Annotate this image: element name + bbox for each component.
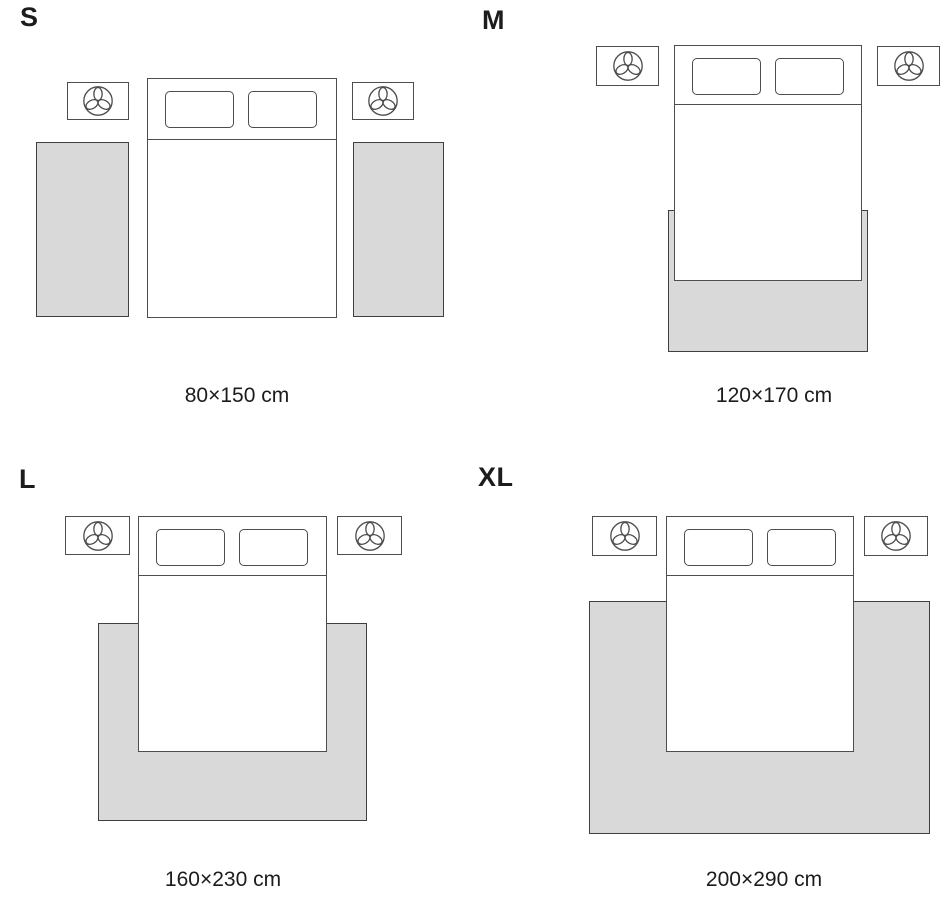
rug-right-runner [353,142,444,317]
pillow-left [692,58,761,95]
size-label: 80×150 cm [137,383,337,408]
nightstand-right [877,46,940,86]
pillow-right [775,58,844,95]
rug-left-runner [36,142,129,317]
nightstand-right [352,82,414,120]
plant-icon [353,519,387,553]
pillow-left [684,529,753,566]
bed [666,516,854,752]
bed [674,45,862,281]
nightstand-right [337,516,402,555]
nightstand-left [596,46,659,86]
plant-icon [81,519,115,553]
size-letter: S [20,4,39,31]
nightstand-right [864,516,928,556]
plant-icon [611,49,645,83]
plant-icon [608,519,642,553]
bed [147,78,337,318]
pillow-right [239,529,308,566]
nightstand-left [592,516,657,556]
bed-headboard [139,517,326,576]
bed-headboard [667,517,853,576]
plant-icon [366,84,400,118]
bed-headboard [675,46,861,105]
size-label: 120×170 cm [674,383,874,408]
bed-headboard [148,79,336,140]
nightstand-left [67,82,129,120]
plant-icon [892,49,926,83]
size-label: 160×230 cm [123,867,323,892]
bed [138,516,327,752]
rug-size-guide: S 80×150 cm M [0,0,950,900]
pillow-right [248,91,317,128]
pillow-left [156,529,225,566]
panel-size-l: L 160×230 cm [0,450,475,900]
pillow-left [165,91,234,128]
size-letter: L [19,466,36,493]
size-letter: XL [478,464,514,491]
size-label: 200×290 cm [664,867,864,892]
nightstand-left [65,516,130,555]
panel-size-s: S 80×150 cm [0,0,475,450]
panel-size-m: M 120×170 cm [475,0,950,450]
pillow-right [767,529,836,566]
plant-icon [81,84,115,118]
plant-icon [879,519,913,553]
panel-size-xl: XL 200×290 cm [475,450,950,900]
size-letter: M [482,7,505,34]
